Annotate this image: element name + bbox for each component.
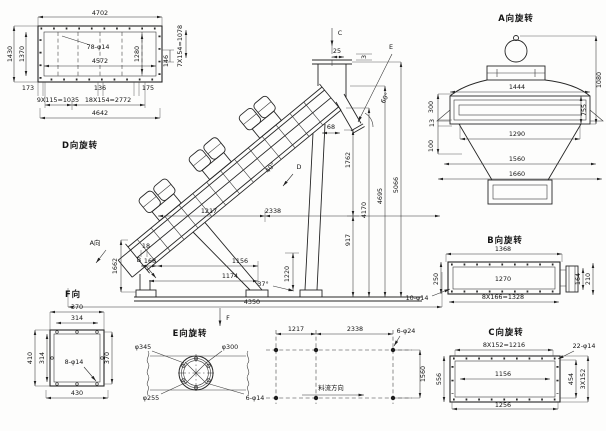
view-e-title: E向旋转 (173, 328, 208, 338)
d-dim-4702-ext (38, 17, 162, 26)
drawing-sheet: 4702 78-φ14 4572 1430 1370 1280 146 7X15… (0, 0, 606, 431)
a-side-tabs (437, 110, 603, 121)
dim-4170-text: 4170 (360, 202, 368, 218)
plan-dim-2338-text: 2338 (347, 325, 363, 333)
dim-d-width-inner: 4572 (92, 57, 108, 65)
dim-1156-text: 1156 (232, 257, 248, 265)
view-f: F向 370 314 410 314 370 430 8-φ14 (26, 289, 112, 398)
view-a-title: A向旋转 (498, 13, 534, 23)
a-dim-100-text: 100 (427, 140, 435, 152)
a-dim-1080-text: 1080 (595, 72, 603, 88)
a-dim-300-text: 300 (427, 101, 435, 113)
dim-4695-text: 4695 (376, 188, 384, 204)
f-holes-leader (84, 367, 96, 381)
label-f: F (226, 314, 230, 322)
plan-anchor-bolts (274, 348, 395, 400)
view-d-rotation: 4702 78-φ14 4572 1430 1370 1280 146 7X15… (6, 9, 186, 150)
view-d-title: D向旋转 (62, 140, 98, 150)
a-outlet-outer (488, 180, 552, 204)
e-dim-300-text: φ300 (222, 343, 238, 351)
dim-d-height-inner: 1370 (18, 46, 26, 62)
body-truss-rungs (137, 102, 322, 263)
dim-1220-text: 1220 (283, 266, 291, 282)
view-f-title: F向 (65, 289, 81, 299)
dim-5066-text: 5066 (392, 177, 400, 193)
a-pedestal-bolts (487, 69, 545, 77)
c-holes-text: 22-φ14 (573, 342, 596, 350)
plan-centerlines (266, 330, 412, 404)
label-b: B (137, 256, 141, 264)
b-dim-250-text: 250 (432, 273, 440, 285)
view-e-rotation: E向旋转 φ345 φ300 φ255 6-φ14 (135, 328, 265, 402)
angle-60-text: 60° (379, 91, 391, 105)
foot-tail (136, 290, 156, 297)
label-e: E (389, 43, 393, 51)
dim-1762-text: 1762 (344, 152, 352, 168)
a-dim-755-text: 755 (580, 104, 588, 116)
c-dim-1256-text: 1256 (495, 401, 511, 409)
view-main-elevation: C 25 3 E 60° 40° 68 1762 917 4170 4695 5… (68, 28, 442, 326)
b-dim-1368-text: 1368 (495, 245, 511, 253)
e-dim-255-text: φ255 (143, 394, 159, 402)
e-dim-345-text: φ345 (135, 343, 151, 351)
a-band-inner (454, 100, 586, 120)
f-dim-314l-text: 314 (38, 352, 46, 364)
b-dim-164-text: 164 (574, 273, 582, 285)
dim-1217-text: 1217 (201, 207, 217, 215)
f-ext-lines (35, 312, 112, 398)
dim-d-pitch2: 18X154=2772 (85, 96, 131, 104)
foot-left (246, 290, 268, 297)
dim-1662-text: 1662 (111, 258, 119, 274)
dim-d-holes: 78-φ14 (87, 43, 110, 51)
dim-68-text: 68 (327, 123, 335, 131)
plan-dim-1560-text: 1560 (419, 366, 427, 382)
vibration-motor-2 (188, 136, 235, 182)
label-d: D (297, 163, 302, 171)
dim-vstack-ext (346, 62, 401, 108)
f-holes-text: 8-φ14 (65, 358, 84, 366)
dim-917-text: 917 (344, 234, 352, 246)
a-outlet-inner (493, 185, 547, 199)
support-legs (140, 124, 325, 290)
view-b-rotation: B向旋转 1368 1270 8X166=1328 10-φ14 250 164… (406, 235, 593, 302)
plan-holes-leader (394, 336, 400, 346)
plan-dim-1560-ext (395, 350, 420, 398)
dim-d-b3: 175 (142, 84, 154, 92)
view-e-arrow (358, 54, 392, 122)
dim-d-b1: 173 (22, 84, 34, 92)
dim-d-right-offset: 146 (162, 55, 170, 67)
label-c: C (338, 29, 343, 37)
angle-37-leader (273, 286, 294, 291)
foot-right (300, 290, 322, 297)
plan-dim-1217-text: 1217 (288, 325, 304, 333)
dim-1762-ext (344, 130, 359, 216)
view-b-arrow (146, 266, 156, 278)
dim-4350-text: 4350 (244, 298, 260, 306)
b-end-detail (560, 266, 575, 292)
f-dim-430-text: 430 (71, 389, 83, 397)
f-dim-370t-text: 370 (71, 303, 83, 311)
a-dim-1660-text: 1660 (509, 170, 525, 178)
c-dim-1216-ext (455, 350, 553, 356)
dim-18-text: 18 (142, 242, 150, 250)
e-holes-text: 6-φ14 (246, 394, 265, 402)
dim-d-width-bottom: 4642 (92, 109, 108, 117)
label-a-dir: A向 (90, 238, 101, 247)
a-dim-13-text: 13 (428, 119, 436, 127)
c-dim-1156-text: 1156 (495, 370, 511, 378)
view-c-title: C向旋转 (488, 327, 523, 337)
dim-1174-text: 1174 (222, 272, 238, 280)
d-bottom-ticks (38, 82, 139, 96)
vibration-motor-1 (137, 177, 184, 223)
dim-2338-text: 2338 (265, 207, 281, 215)
dim-25-text: 25 (333, 47, 341, 55)
a-motor-circle (505, 40, 527, 62)
view-a-arrow (96, 250, 106, 263)
dim-d-pitch1: 9X115=1035 (37, 96, 79, 104)
a-dim-1290-text: 1290 (509, 130, 525, 138)
dim-d-right-pitch: 7X154=1078 (176, 25, 184, 67)
dim-d-height-outer: 1430 (6, 46, 14, 62)
angle-37-text: 37° (257, 280, 268, 288)
discharge-chute (336, 94, 365, 134)
f-dim-370r-text: 370 (103, 352, 111, 364)
a-band-slot (459, 105, 581, 115)
a-dim-1444-text: 1444 (509, 83, 525, 91)
c-dim-3x152-text: 3X152 (579, 369, 587, 390)
plan-holes-text: 6-φ24 (397, 327, 416, 335)
foundation-plan: 1217 2338 6-φ24 1560 料流方向 (266, 325, 427, 404)
view-d-arrow (283, 174, 293, 186)
base-line (134, 297, 422, 301)
c-holes-leader (558, 351, 574, 359)
vibration-motor-3 (238, 95, 285, 141)
engineering-drawing: 4702 78-φ14 4572 1430 1370 1280 146 7X15… (0, 0, 606, 431)
view-b-title: B向旋转 (487, 235, 523, 245)
c-dim-556-text: 556 (435, 373, 443, 385)
f-dim-410-text: 410 (26, 352, 34, 364)
dim-d-width-top: 4702 (92, 9, 108, 17)
b-holes-text: 10-φ14 (406, 294, 429, 302)
view-c-rotation: C向旋转 8X152=1216 22-φ14 1156 1256 556 454… (435, 327, 595, 409)
dim-d-b2: 136 (94, 84, 106, 92)
c-dim-454-text: 454 (567, 373, 575, 385)
b-dim-1368-ext (446, 254, 562, 262)
view-a-rotation: A向旋转 1444 1080 755 300 13 100 1290 1560 … (427, 13, 603, 204)
dim-168-text: 168 (144, 257, 156, 265)
b-dim-1328-text: 8X166=1328 (482, 293, 524, 301)
plan-flow-text: 料流方向 (318, 383, 344, 392)
b-dim-1270-text: 1270 (495, 275, 511, 283)
head-column (312, 60, 352, 110)
dim-d-right-inner: 1280 (133, 46, 141, 62)
f-dim-314t-text: 314 (71, 314, 83, 322)
c-dim-1216-text: 8X152=1216 (483, 341, 525, 349)
dim-3-text: 3 (360, 55, 368, 59)
b-dim-210-text: 210 (584, 273, 592, 285)
a-dim-1560-text: 1560 (509, 155, 525, 163)
